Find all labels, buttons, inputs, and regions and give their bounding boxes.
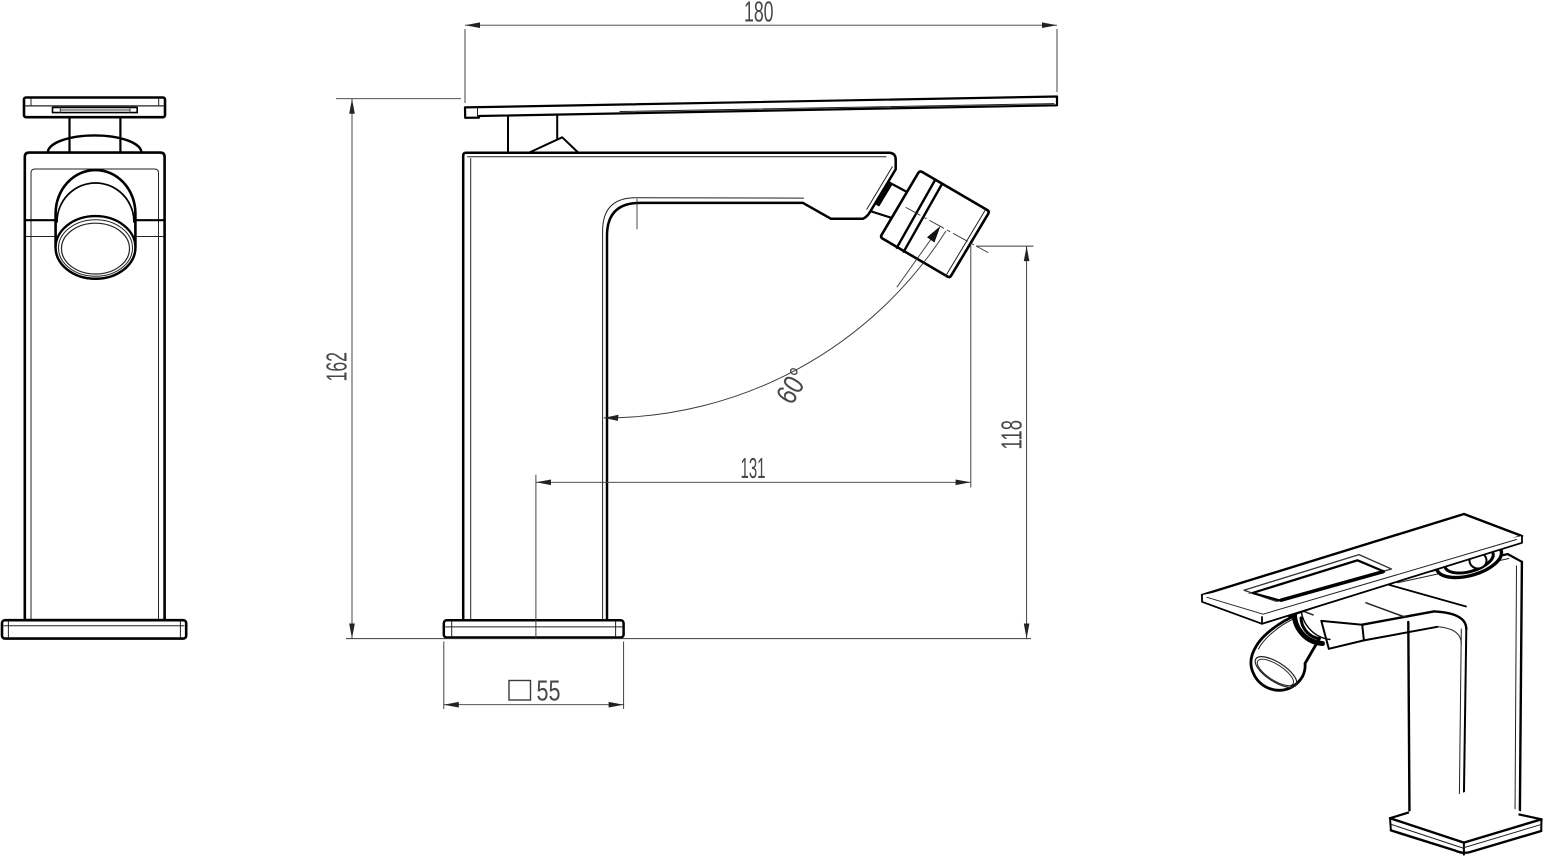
svg-text:118: 118 xyxy=(997,420,1029,450)
svg-text:180: 180 xyxy=(744,0,774,29)
svg-text:162: 162 xyxy=(322,352,354,382)
svg-text:55: 55 xyxy=(537,676,561,708)
svg-text:131: 131 xyxy=(741,453,766,485)
